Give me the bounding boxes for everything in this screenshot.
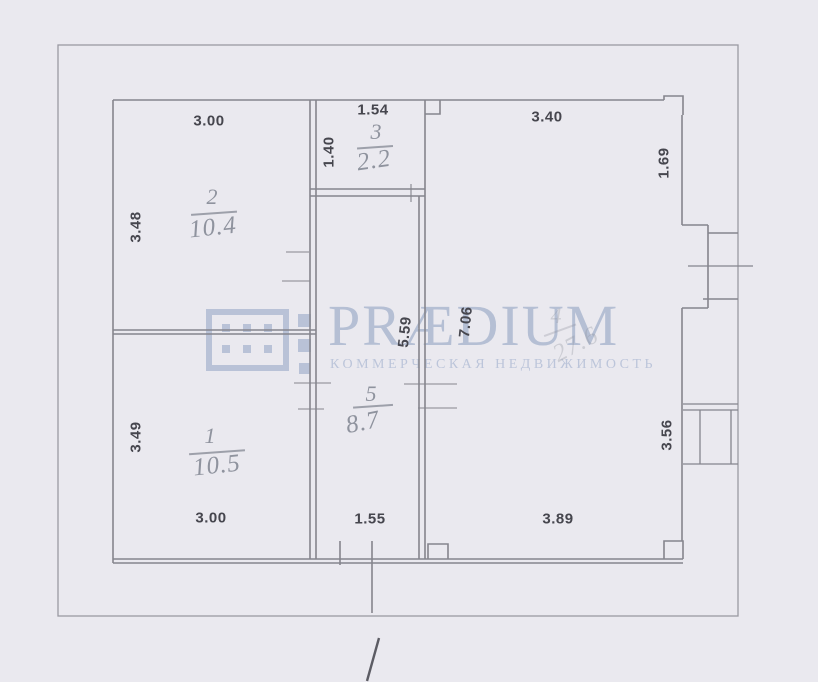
pilaster-room3 [425,100,440,114]
room3-number: 3 [371,119,382,145]
room1-area: 10.5 [192,450,242,483]
floor-plan-page: PRÆDIUM КОММЕРЧЕСКАЯ НЕДВИЖИМОСТЬ [0,0,818,682]
entrance-door-leaf [367,638,379,681]
pilaster-bottom-right [664,541,683,559]
dim-room2-left: 3.48 [128,211,145,242]
window-lower [683,404,738,464]
wall-room1-room2-divider [113,330,316,334]
dim-room4-right-lower: 3.56 [659,419,676,450]
door-ticks-room2 [282,252,310,281]
wall-bottom [113,559,683,563]
room2-number: 2 [207,184,218,210]
dim-room4-top: 3.40 [531,109,562,126]
dim-room4-right-upper: 1.69 [656,147,673,178]
wall-room3-bottom [310,189,425,196]
room5-number: 5 [366,381,377,407]
dim-room3-top: 1.54 [357,102,388,119]
pilaster-top-right [664,96,683,115]
door-ticks-room1 [294,383,331,409]
dim-corridor-bottom: 1.55 [354,511,385,528]
room2-area: 10.4 [188,212,238,245]
dim-room1-bottom: 3.00 [195,510,226,527]
dim-room4-height: 7.06 [456,306,476,339]
room3-area: 2.2 [355,145,393,177]
pilaster-entrance [428,544,448,559]
door-ticks-room4 [404,384,457,408]
dim-corridor-height: 5.59 [395,316,415,349]
wall-corridor-right [419,100,425,559]
dim-room1-left: 3.49 [128,421,145,452]
dim-room2-top: 3.00 [193,113,224,130]
dim-room4-bottom: 3.89 [542,511,573,528]
room1-number: 1 [205,423,216,449]
room4-number: 4 [551,303,562,329]
dim-room3-left: 1.40 [321,136,338,167]
entrance-jambs [340,541,372,613]
